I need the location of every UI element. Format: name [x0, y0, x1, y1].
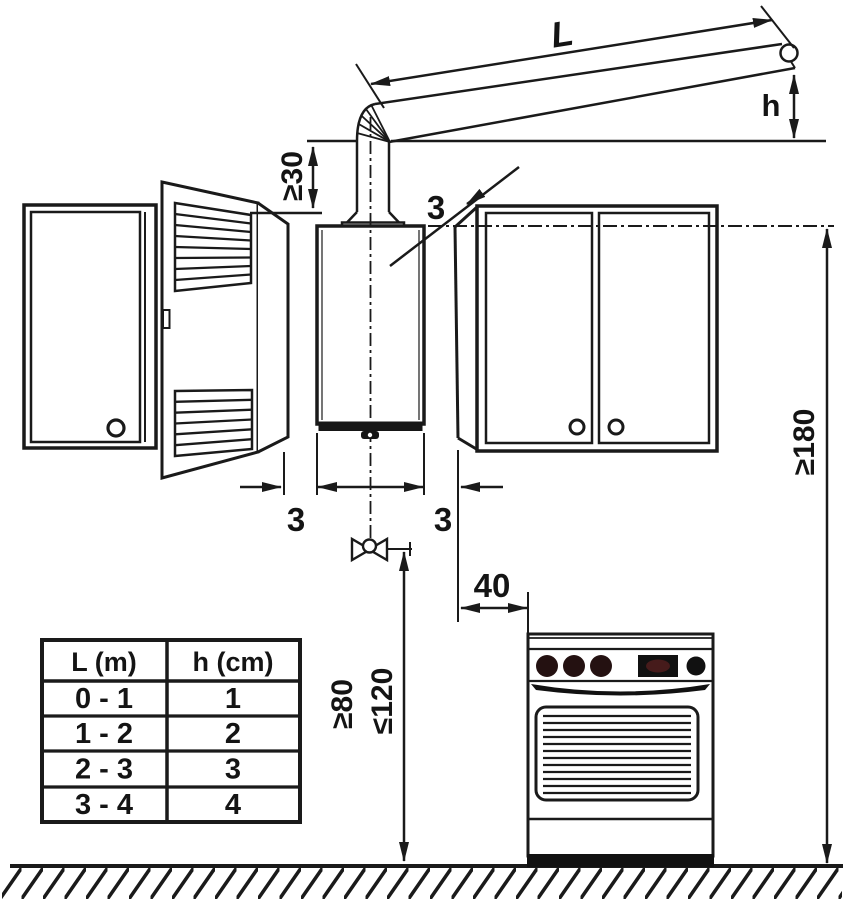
stove-knob-4 [687, 657, 706, 676]
boiler-bottom-band [319, 422, 423, 432]
boiler-fitting-dot [368, 433, 372, 437]
dim-L-label: L [548, 12, 576, 56]
stove-knob-3 [590, 655, 612, 677]
table-cell: 1 - 2 [75, 718, 133, 750]
table-cell: 1 [225, 683, 241, 715]
valve-stem [363, 540, 376, 553]
table-header-h: h (cm) [193, 647, 274, 677]
flue-pipe [342, 44, 798, 229]
dim-L-ext-left [356, 64, 384, 108]
right-cabinet-body [477, 206, 717, 451]
ground-hatch [2, 868, 842, 899]
open-louvered-door [162, 182, 288, 478]
dim-180-label: ≥180 [788, 409, 821, 476]
gap-right-label: 3 [434, 501, 452, 538]
open-door-edge [258, 203, 288, 452]
dim-h-label: h [762, 88, 781, 123]
right-cabinet-side-edge [455, 227, 458, 438]
table-cell: 0 - 1 [75, 683, 133, 715]
stove-knob-2 [563, 655, 585, 677]
table-header-L: L (m) [71, 647, 137, 677]
dim-80-label: ≥80 [326, 679, 359, 729]
stove-plinth [527, 854, 714, 867]
left-cabinet-body [24, 205, 156, 448]
flue-draft-hood-flare [347, 212, 399, 223]
right-cabinet-side-top [455, 207, 477, 227]
stove-display-window [646, 660, 670, 673]
dim-L-ext-right [761, 6, 794, 48]
table-cell: 3 [225, 754, 241, 786]
gap-left-label: 3 [287, 501, 305, 538]
right-cabinet-side-bottom [458, 438, 478, 450]
ground [2, 866, 843, 899]
dim-30-label: ≥30 [276, 151, 309, 201]
gap-top-label: 3 [427, 189, 445, 226]
table-cell: 2 [225, 718, 241, 750]
dim-120-label: ≤120 [366, 668, 399, 735]
flue-elbow-segments [357, 106, 390, 143]
table-cell: 2 - 3 [75, 754, 133, 786]
stove [527, 634, 714, 867]
left-cabinet [24, 205, 156, 448]
installation-clearance-diagram: L h ≥30 3 3 3 40 ≥80 ≤120 ≥180 L (m) h (… [0, 0, 850, 901]
open-door-handle [163, 310, 170, 328]
flue-sloped-bottom [389, 68, 795, 142]
flue-terminal [781, 45, 798, 62]
table-cell: 3 - 4 [75, 789, 133, 821]
right-cabinet [455, 206, 717, 451]
diagram-canvas: L h ≥30 3 3 3 40 ≥80 ≤120 ≥180 L (m) h (… [0, 0, 850, 901]
stove-knob-1 [536, 655, 558, 677]
boiler [317, 117, 424, 540]
dim-40-label: 40 [474, 567, 511, 604]
table-cell: 4 [225, 789, 241, 821]
